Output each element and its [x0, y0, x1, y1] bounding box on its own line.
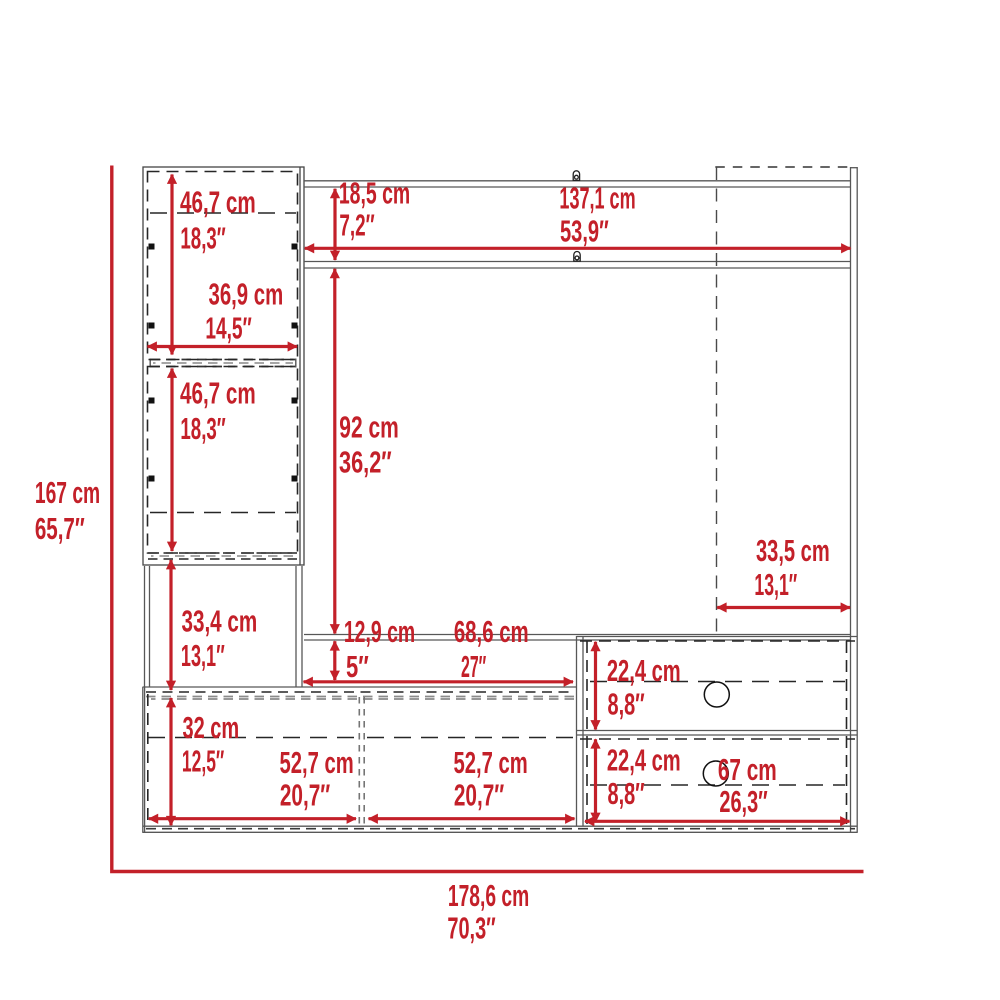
svg-text:26,3″: 26,3″	[719, 786, 767, 819]
svg-text:13,1″: 13,1″	[754, 568, 797, 602]
svg-text:22,4 cm: 22,4 cm	[607, 745, 681, 778]
svg-text:167 cm: 167 cm	[35, 477, 100, 510]
svg-text:12,5″: 12,5″	[182, 746, 224, 779]
svg-text:12,9 cm: 12,9 cm	[344, 616, 415, 649]
svg-text:53,9″: 53,9″	[560, 216, 609, 249]
svg-text:13,1″: 13,1″	[181, 639, 225, 673]
svg-text:33,4 cm: 33,4 cm	[182, 603, 258, 638]
svg-text:36,2″: 36,2″	[339, 445, 392, 480]
svg-text:18,3″: 18,3″	[180, 412, 225, 446]
svg-text:7,2″: 7,2″	[339, 209, 374, 243]
svg-text:5″: 5″	[346, 649, 369, 683]
svg-text:20,7″: 20,7″	[280, 777, 331, 812]
svg-text:178,6 cm: 178,6 cm	[448, 880, 529, 913]
svg-text:32 cm: 32 cm	[183, 712, 240, 745]
svg-text:68,6 cm: 68,6 cm	[454, 616, 529, 649]
svg-text:70,3″: 70,3″	[447, 912, 495, 945]
svg-text:52,7 cm: 52,7 cm	[454, 747, 528, 780]
svg-text:33,5 cm: 33,5 cm	[756, 535, 830, 568]
svg-text:14,5″: 14,5″	[205, 312, 251, 346]
svg-text:22,4 cm: 22,4 cm	[607, 655, 681, 688]
svg-text:27″: 27″	[461, 651, 487, 685]
svg-text:46,7 cm: 46,7 cm	[180, 375, 256, 410]
svg-text:18,5 cm: 18,5 cm	[339, 177, 410, 210]
svg-text:46,7 cm: 46,7 cm	[180, 184, 256, 219]
svg-text:52,7 cm: 52,7 cm	[280, 747, 354, 780]
svg-text:67 cm: 67 cm	[718, 752, 777, 787]
svg-text:20,7″: 20,7″	[454, 777, 505, 812]
svg-text:8,8″: 8,8″	[608, 688, 645, 721]
svg-text:36,9 cm: 36,9 cm	[209, 279, 284, 312]
svg-text:18,3″: 18,3″	[180, 222, 225, 256]
svg-text:92 cm: 92 cm	[339, 410, 398, 445]
svg-text:137,1 cm: 137,1 cm	[559, 182, 635, 216]
svg-text:8,8″: 8,8″	[608, 778, 645, 811]
svg-text:65,7″: 65,7″	[35, 511, 85, 546]
